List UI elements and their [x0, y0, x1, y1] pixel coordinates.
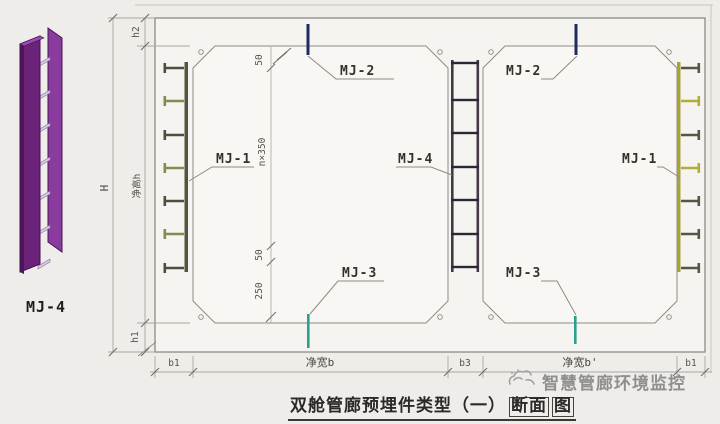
dim-left-wall: b1: [168, 358, 180, 369]
callout-mj2-left: MJ-2: [340, 64, 375, 79]
cross-section-canvas: MJ-2 MJ-1 MJ-3 MJ-4 MJ-2 MJ-1 MJ-3 H h2: [0, 0, 720, 424]
right-compartment: [483, 46, 677, 323]
callout-mj1-left: MJ-1: [216, 152, 251, 167]
dim-embed-spacing: n×350: [257, 137, 268, 166]
drawing-title-boxed-char: 图: [552, 397, 574, 417]
watermark: 智慧管廊环境监控: [506, 366, 686, 396]
watermark-text: 智慧管廊环境监控: [542, 369, 686, 394]
mj2-embed-left: [307, 24, 310, 55]
left-compartment: [193, 46, 448, 323]
dim-embed-bottom-offset: 50: [254, 249, 265, 261]
dim-embed-clearance: 250: [254, 282, 265, 299]
dim-embed-top-offset: 50: [254, 54, 265, 66]
callout-mj2-right: MJ-2: [506, 64, 541, 79]
mj3-embed-left: [307, 314, 310, 348]
dim-mid-wall: b3: [459, 358, 470, 369]
drawing-title-text: 双舱管廊预埋件类型（一）: [290, 396, 506, 416]
callout-mj3-left: MJ-3: [342, 266, 377, 281]
callout-mj1-right: MJ-1: [622, 152, 657, 167]
dim-left-span: 净宽b: [306, 355, 335, 369]
dim-floor-thickness: h1: [130, 331, 141, 343]
dim-right-wall: b1: [685, 358, 697, 369]
watermark-logo-icon: [506, 366, 538, 396]
mj3-embed-right: [574, 316, 577, 344]
corner-break-mark: [138, 342, 156, 356]
drawing-title-boxed-section: 断面: [509, 397, 549, 417]
dim-overall-height: H: [98, 185, 111, 192]
mj2-embed-right: [575, 24, 578, 55]
callout-mj3-right: MJ-3: [506, 266, 541, 281]
dim-net-height: 净高h: [131, 174, 143, 199]
tunnel-structure: [138, 18, 705, 356]
callout-mj4-center: MJ-4: [398, 152, 433, 167]
section-drawing-sheet: MJ-4: [0, 0, 720, 424]
dim-roof-thickness: h2: [131, 26, 142, 37]
